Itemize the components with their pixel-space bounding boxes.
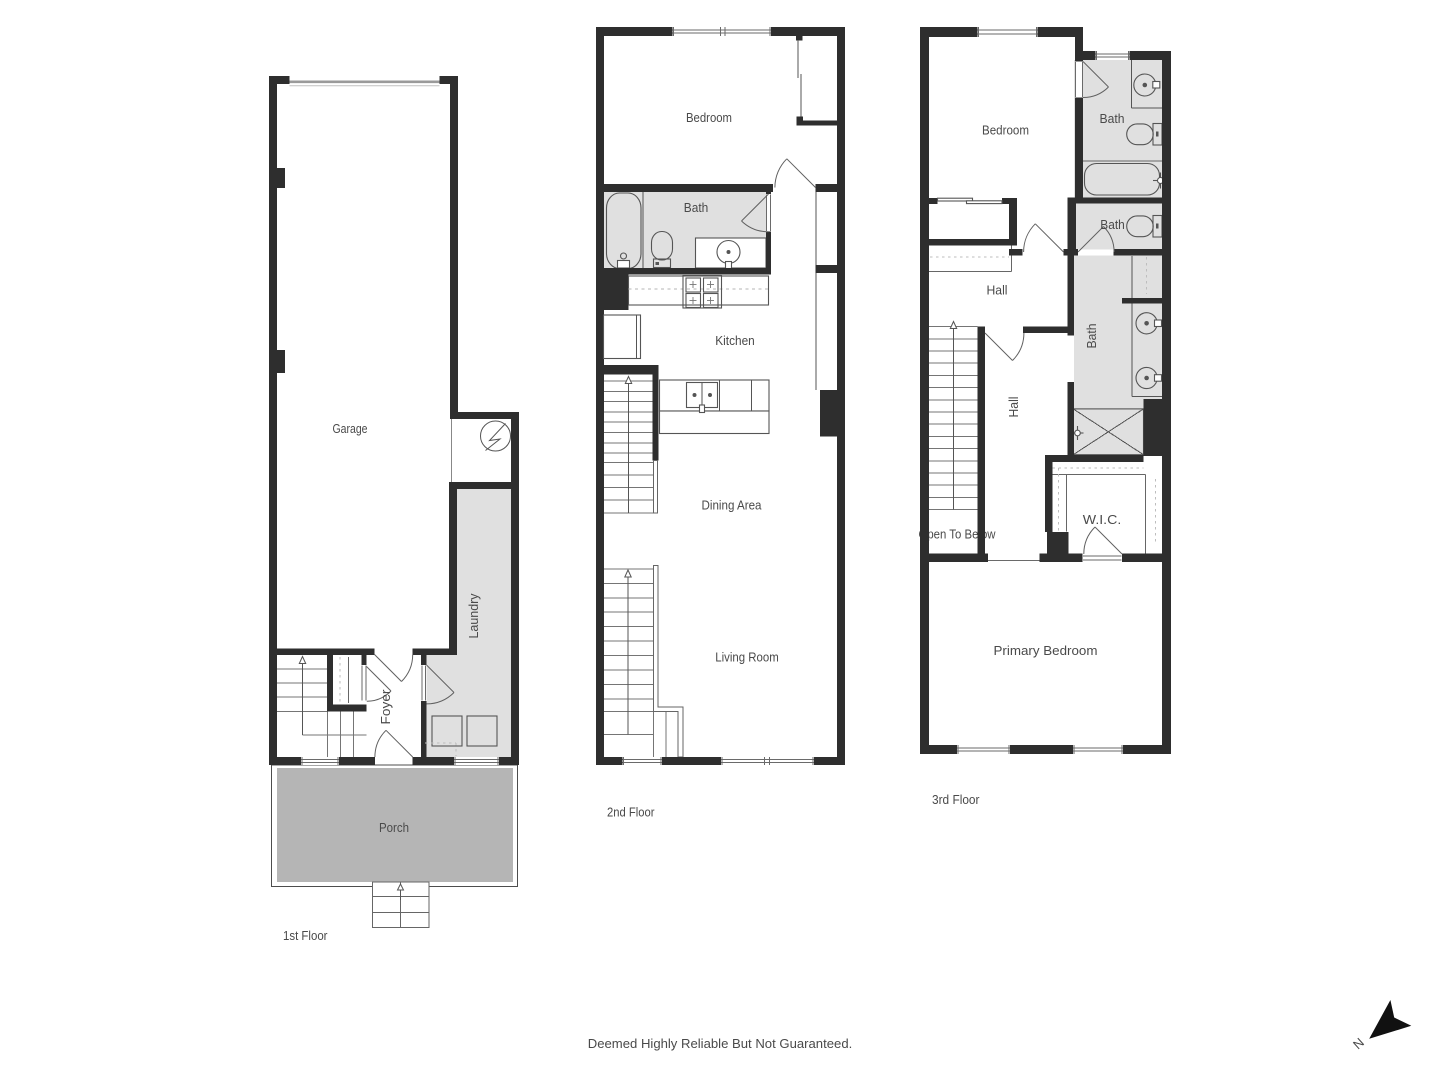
svg-text:Kitchen: Kitchen: [715, 333, 755, 348]
svg-text:Laundry: Laundry: [466, 593, 481, 638]
svg-text:Foyer: Foyer: [378, 689, 393, 725]
svg-text:Garage: Garage: [333, 421, 368, 436]
svg-text:Hall: Hall: [987, 283, 1008, 298]
svg-text:2nd Floor: 2nd Floor: [607, 805, 655, 820]
svg-text:Bath: Bath: [1100, 217, 1125, 232]
svg-text:Bath: Bath: [1100, 111, 1125, 126]
svg-text:Deemed Highly Reliable But Not: Deemed Highly Reliable But Not Guarantee…: [588, 1036, 853, 1051]
svg-text:Primary Bedroom: Primary Bedroom: [994, 643, 1098, 658]
svg-text:Porch: Porch: [379, 820, 409, 835]
svg-text:1st Floor: 1st Floor: [283, 928, 328, 943]
svg-text:Bath: Bath: [684, 200, 709, 215]
svg-text:Living Room: Living Room: [715, 650, 779, 665]
svg-text:Bedroom: Bedroom: [982, 123, 1029, 138]
svg-text:Bath: Bath: [1084, 324, 1099, 349]
svg-text:Bedroom: Bedroom: [686, 110, 732, 125]
svg-text:3rd Floor: 3rd Floor: [932, 792, 980, 807]
svg-text:Dining Area: Dining Area: [702, 498, 763, 513]
svg-text:W.I.C.: W.I.C.: [1083, 512, 1122, 527]
svg-text:Hall: Hall: [1006, 396, 1021, 417]
